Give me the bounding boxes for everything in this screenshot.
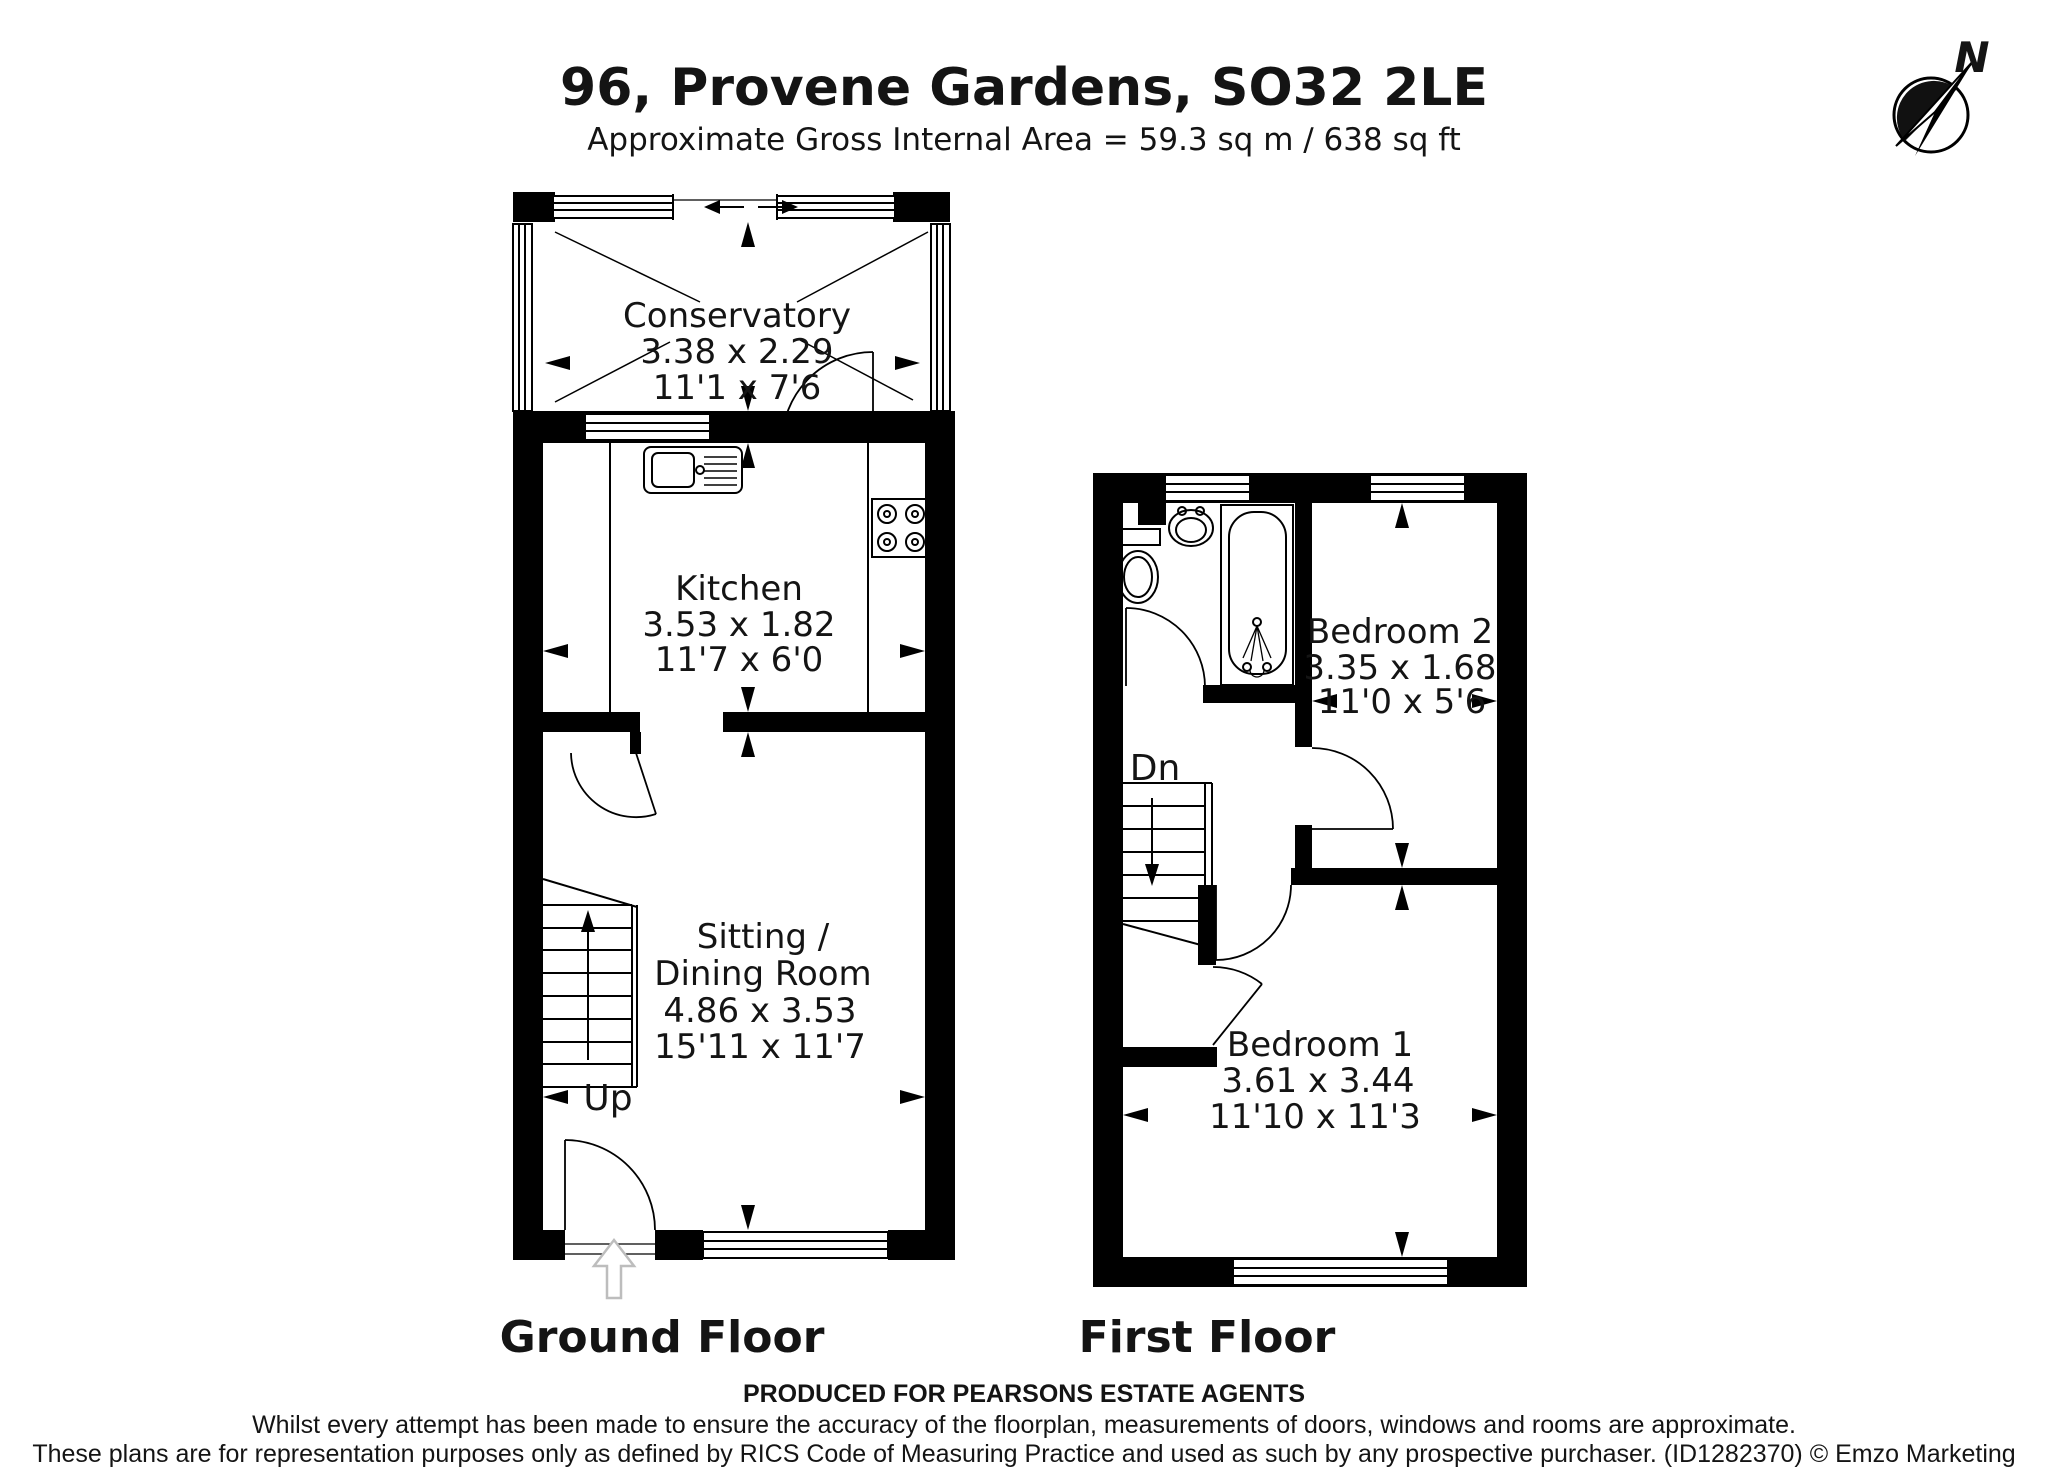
conservatory-label: Conservatory bbox=[623, 296, 851, 336]
stairs-up-label: Up bbox=[583, 1078, 632, 1119]
ground-floor-label: Ground Floor bbox=[500, 1312, 825, 1363]
footer-produced-for: PRODUCED FOR PEARSONS ESTATE AGENTS bbox=[743, 1380, 1305, 1408]
kitchen-label: Kitchen bbox=[675, 569, 803, 609]
kitchen-dims-imperial: 11'7 x 6'0 bbox=[655, 640, 824, 680]
footer-disclaimer-line1: Whilst every attempt has been made to en… bbox=[252, 1411, 1796, 1439]
page-subtitle: Approximate Gross Internal Area = 59.3 s… bbox=[587, 122, 1461, 158]
conservatory-dims-imperial: 11'1 x 7'6 bbox=[653, 368, 822, 408]
bedroom1-dims-imperial: 11'10 x 11'3 bbox=[1209, 1097, 1421, 1137]
entrance-arrow-icon bbox=[594, 1240, 634, 1298]
ground-floor-plan: Conservatory 3.38 x 2.29 11'1 x 7'6 Kitc… bbox=[500, 192, 955, 1363]
bedroom1-dims-metric: 3.61 x 3.44 bbox=[1221, 1061, 1414, 1101]
sitting-dining-label-line2: Dining Room bbox=[654, 954, 871, 994]
bedroom2-dims-imperial: 11'0 x 5'6 bbox=[1318, 682, 1487, 722]
page-title: 96, Provene Gardens, SO32 2LE bbox=[560, 58, 1488, 118]
compass-icon: N bbox=[1894, 33, 1990, 156]
first-walls bbox=[1093, 473, 1527, 1287]
kitchen-sink-icon bbox=[644, 447, 742, 493]
kitchen-dims-metric: 3.53 x 1.82 bbox=[642, 605, 835, 645]
first-floor-label: First Floor bbox=[1079, 1312, 1336, 1363]
bedroom1-label: Bedroom 1 bbox=[1227, 1025, 1413, 1065]
compass-north-label: N bbox=[1954, 33, 1989, 82]
sitting-dining-label-line1: Sitting / bbox=[697, 917, 830, 957]
sitting-dining-dims-imperial: 15'11 x 11'7 bbox=[654, 1027, 866, 1067]
sitting-dining-dims-metric: 4.86 x 3.53 bbox=[663, 991, 856, 1031]
bathtub-icon bbox=[1221, 505, 1293, 685]
basin-icon bbox=[1169, 507, 1213, 546]
conservatory-dims-metric: 3.38 x 2.29 bbox=[640, 332, 833, 372]
first-floor-plan: Bedroom 2 3.35 x 1.68 11'0 x 5'6 Bedroom… bbox=[1079, 473, 1527, 1363]
floorplan: 96, Provene Gardens, SO32 2LE Approximat… bbox=[0, 0, 2048, 1472]
stairs-up bbox=[543, 879, 637, 1087]
hob-icon bbox=[872, 499, 930, 557]
footer-disclaimer-line2: These plans are for representation purpo… bbox=[32, 1440, 2015, 1468]
bedroom2-label: Bedroom 2 bbox=[1307, 612, 1493, 652]
stairs-down-label: Dn bbox=[1130, 748, 1181, 789]
